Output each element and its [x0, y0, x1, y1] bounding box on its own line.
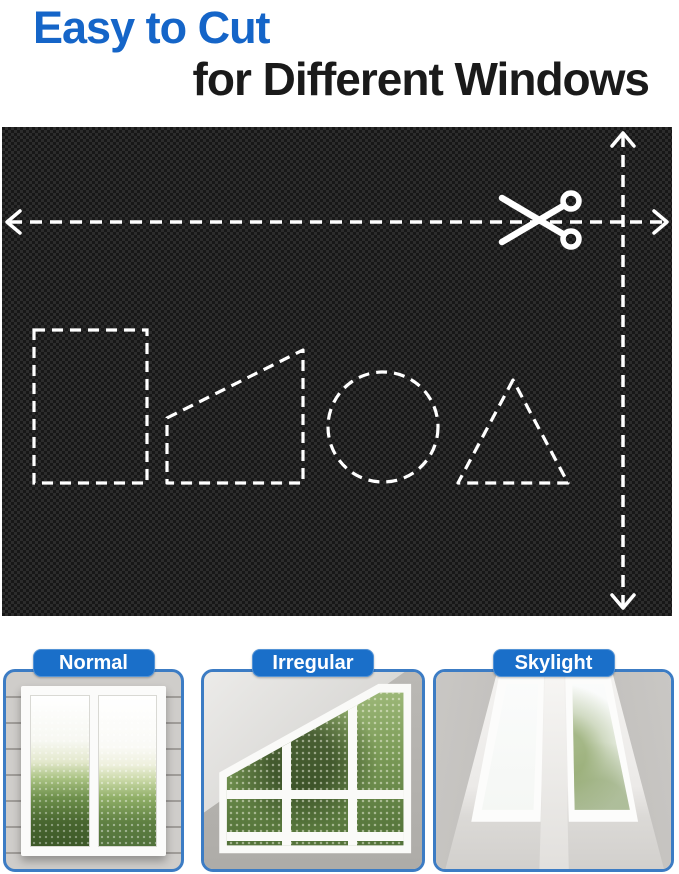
window-mullion	[204, 832, 422, 841]
title-line-1: Easy to Cut	[33, 2, 270, 54]
window-type-label-irregular: Irregular	[252, 649, 374, 677]
window-type-label-normal: Normal	[33, 649, 155, 677]
window-type-card-skylight: Skylight	[433, 669, 674, 872]
cut-shape-rectangle	[34, 330, 147, 483]
label-text: Irregular	[272, 652, 353, 675]
normal-window-photo	[3, 669, 184, 872]
cut-diagram-svg	[2, 127, 672, 616]
title-line-2: for Different Windows	[193, 52, 649, 106]
cut-line-vertical	[612, 133, 634, 608]
scissors-icon	[502, 193, 579, 247]
window-pane-right	[98, 695, 158, 847]
page: Easy to Cut for Different Windows	[0, 0, 679, 874]
window-mullion	[204, 790, 422, 799]
fabric-panel	[2, 127, 672, 616]
label-text: Skylight	[515, 652, 593, 675]
normal-window-frame	[21, 686, 166, 856]
cut-shape-trapezoid	[167, 350, 303, 483]
window-pane-left	[30, 695, 90, 847]
irregular-window-photo	[201, 669, 425, 872]
cut-shape-triangle	[458, 380, 568, 483]
window-type-card-irregular: Irregular	[201, 669, 425, 872]
label-text: Normal	[59, 652, 128, 675]
window-type-label-skylight: Skylight	[493, 649, 615, 677]
skylight-window-photo	[433, 669, 674, 872]
window-type-card-normal: Normal	[3, 669, 184, 872]
cut-shape-circle	[328, 372, 438, 482]
